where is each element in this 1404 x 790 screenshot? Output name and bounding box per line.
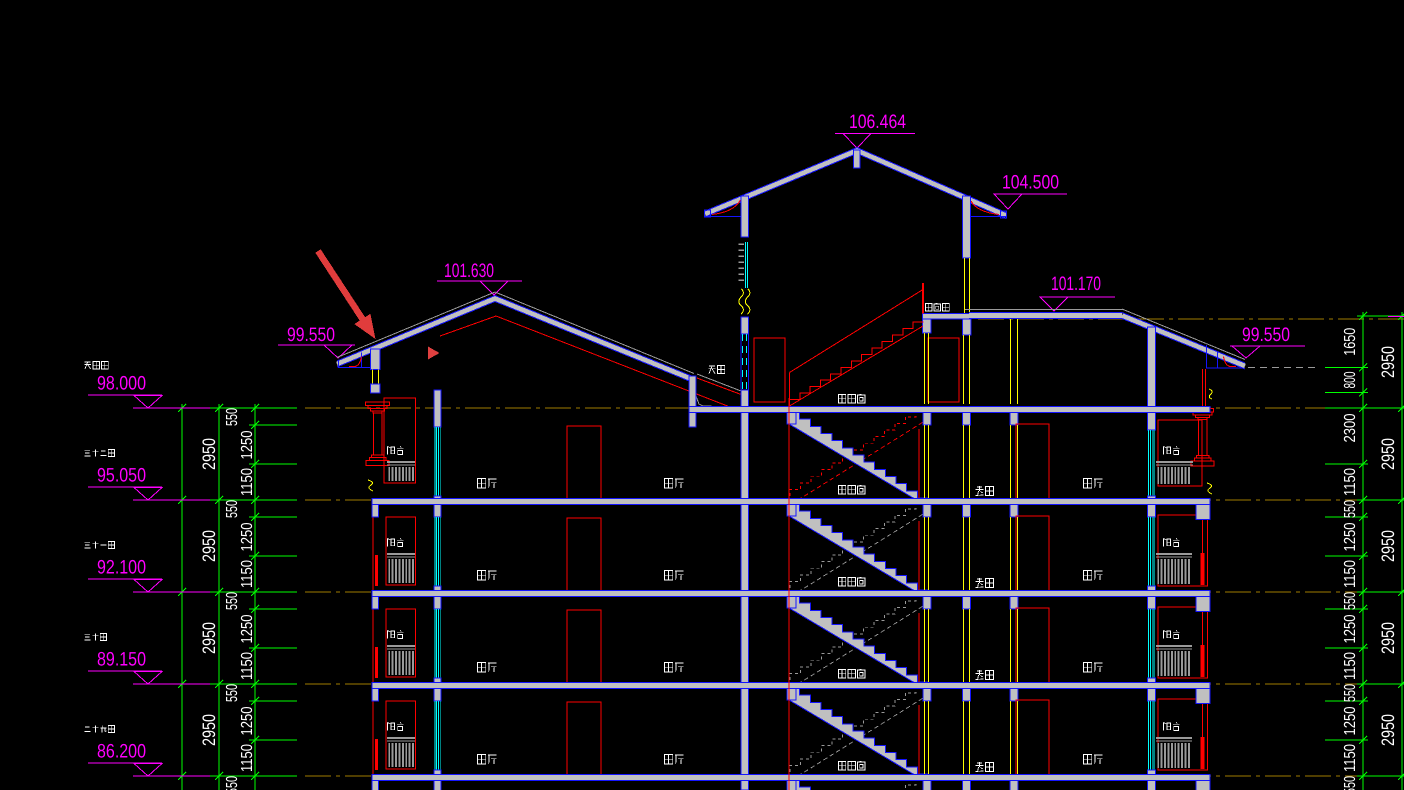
svg-text:99.550: 99.550 bbox=[1242, 324, 1290, 346]
svg-text:92.100: 92.100 bbox=[97, 557, 146, 579]
svg-text:98.000: 98.000 bbox=[97, 373, 146, 395]
svg-text:1250: 1250 bbox=[239, 706, 256, 735]
svg-text:2950: 2950 bbox=[199, 622, 219, 654]
svg-text:1150: 1150 bbox=[1342, 744, 1359, 772]
svg-text:2950: 2950 bbox=[199, 438, 219, 470]
svg-text:2950: 2950 bbox=[1378, 714, 1398, 746]
svg-text:2950: 2950 bbox=[1378, 346, 1398, 378]
svg-text:2950: 2950 bbox=[1378, 622, 1398, 654]
svg-text:1150: 1150 bbox=[239, 652, 256, 680]
svg-text:2950: 2950 bbox=[1378, 530, 1398, 562]
svg-text:550: 550 bbox=[224, 776, 241, 790]
svg-text:86.200: 86.200 bbox=[97, 741, 146, 763]
svg-text:550: 550 bbox=[1342, 592, 1359, 610]
svg-text:800: 800 bbox=[1342, 371, 1359, 388]
svg-text:2950: 2950 bbox=[1378, 438, 1398, 470]
svg-text:106.464: 106.464 bbox=[849, 111, 906, 133]
svg-text:2950: 2950 bbox=[199, 530, 219, 562]
svg-text:99.550: 99.550 bbox=[287, 324, 335, 346]
svg-text:1150: 1150 bbox=[1342, 468, 1359, 496]
svg-text:101.170: 101.170 bbox=[1051, 273, 1101, 295]
svg-text:1250: 1250 bbox=[239, 614, 256, 643]
svg-text:550: 550 bbox=[1342, 776, 1359, 790]
svg-text:550: 550 bbox=[224, 684, 241, 702]
svg-text:89.150: 89.150 bbox=[97, 649, 146, 671]
svg-text:95.050: 95.050 bbox=[97, 465, 146, 487]
svg-text:104.500: 104.500 bbox=[1002, 172, 1059, 194]
svg-text:1150: 1150 bbox=[239, 468, 256, 496]
svg-text:2950: 2950 bbox=[199, 714, 219, 746]
svg-text:550: 550 bbox=[224, 500, 241, 518]
svg-text:550: 550 bbox=[1342, 684, 1359, 702]
svg-text:101.630: 101.630 bbox=[444, 260, 494, 282]
svg-text:1150: 1150 bbox=[1342, 652, 1359, 680]
svg-text:1250: 1250 bbox=[239, 522, 256, 551]
svg-text:1150: 1150 bbox=[239, 744, 256, 772]
svg-text:1150: 1150 bbox=[239, 560, 256, 588]
svg-text:1650: 1650 bbox=[1342, 328, 1359, 356]
svg-text:550: 550 bbox=[224, 408, 241, 426]
svg-text:550: 550 bbox=[224, 592, 241, 610]
svg-text:550: 550 bbox=[1342, 500, 1359, 518]
svg-text:1250: 1250 bbox=[239, 430, 256, 459]
svg-text:2300: 2300 bbox=[1342, 413, 1359, 442]
svg-text:1250: 1250 bbox=[1342, 706, 1359, 735]
svg-text:1150: 1150 bbox=[1342, 560, 1359, 588]
svg-text:1250: 1250 bbox=[1342, 522, 1359, 551]
svg-text:1250: 1250 bbox=[1342, 614, 1359, 643]
